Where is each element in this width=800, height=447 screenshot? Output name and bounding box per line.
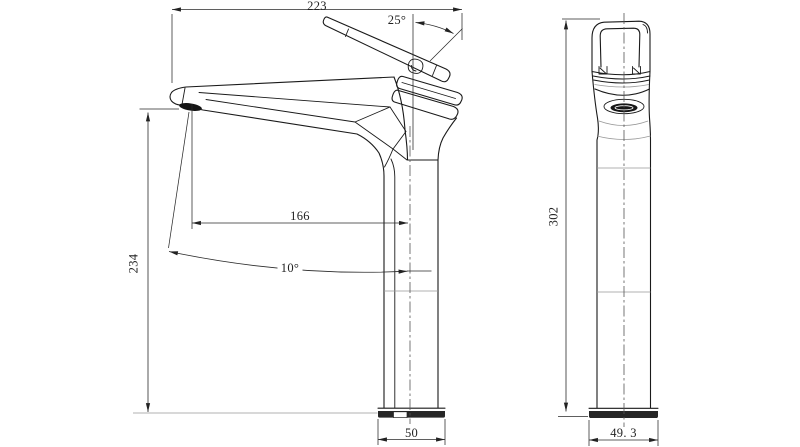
dim-overall-length-label: 223 xyxy=(307,0,327,13)
dim-handle-angle-arc xyxy=(416,23,454,34)
front-shading-lines xyxy=(595,85,651,293)
side-body-detail-lines xyxy=(182,29,456,408)
front-view: 302 49. 3 xyxy=(547,13,659,446)
dim-front-base-width-label: 49. 3 xyxy=(610,426,637,440)
faucet-dimension-drawing: 223 25° 166 10° 234 50 302 49. 3 xyxy=(0,0,800,447)
dim-spout-angle-label: 10° xyxy=(281,261,299,275)
dim-spout-reach-label: 166 xyxy=(290,209,310,223)
front-view-dimensions: 302 49. 3 xyxy=(547,19,659,446)
dim-overall-height-label: 302 xyxy=(547,207,561,227)
dim-spout-height-label: 234 xyxy=(127,253,141,273)
front-base-plate xyxy=(589,411,658,418)
side-body-outline xyxy=(170,17,462,408)
dim-handle-angle-label: 25° xyxy=(388,13,406,27)
side-base-plate xyxy=(378,411,445,418)
dim-side-base-width-label: 50 xyxy=(405,426,418,440)
side-extension-lines xyxy=(140,13,463,445)
front-extension-lines xyxy=(558,19,658,446)
side-base-notch xyxy=(394,412,408,418)
side-joint-and-ground-lines xyxy=(133,291,438,413)
technical-drawing-canvas: 223 25° 166 10° 234 50 302 49. 3 xyxy=(0,0,800,447)
side-view: 223 25° 166 10° 234 50 xyxy=(127,0,463,445)
